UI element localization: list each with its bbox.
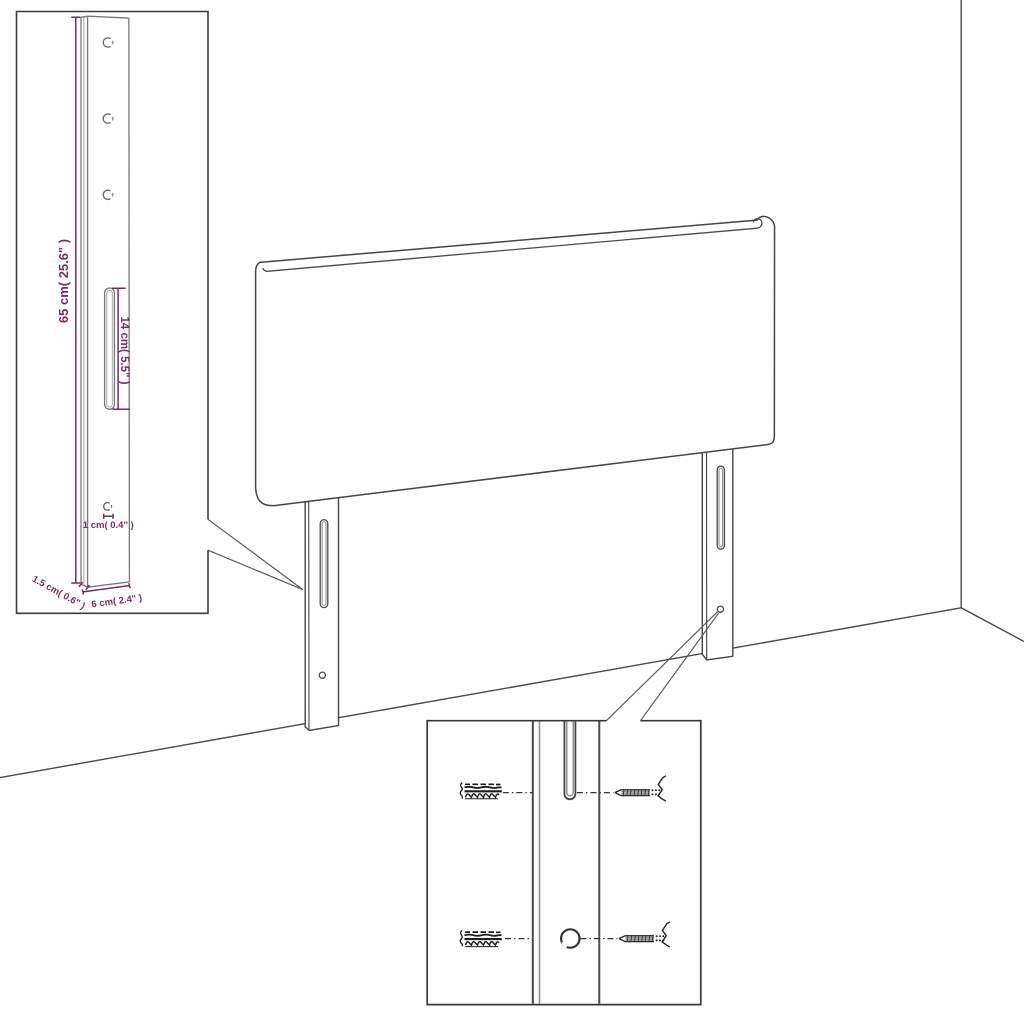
- svg-text:6 cm( 2.4" ): 6 cm( 2.4" ): [91, 593, 143, 611]
- svg-text:65 cm( 25.6" ): 65 cm( 25.6" ): [56, 239, 71, 323]
- svg-text:1.5 cm( 0.6" ): 1.5 cm( 0.6" ): [30, 574, 87, 612]
- svg-text:14 cm( 5.5" ): 14 cm( 5.5" ): [118, 316, 130, 384]
- svg-text:1 cm( 0.4" ): 1 cm( 0.4" ): [83, 520, 134, 531]
